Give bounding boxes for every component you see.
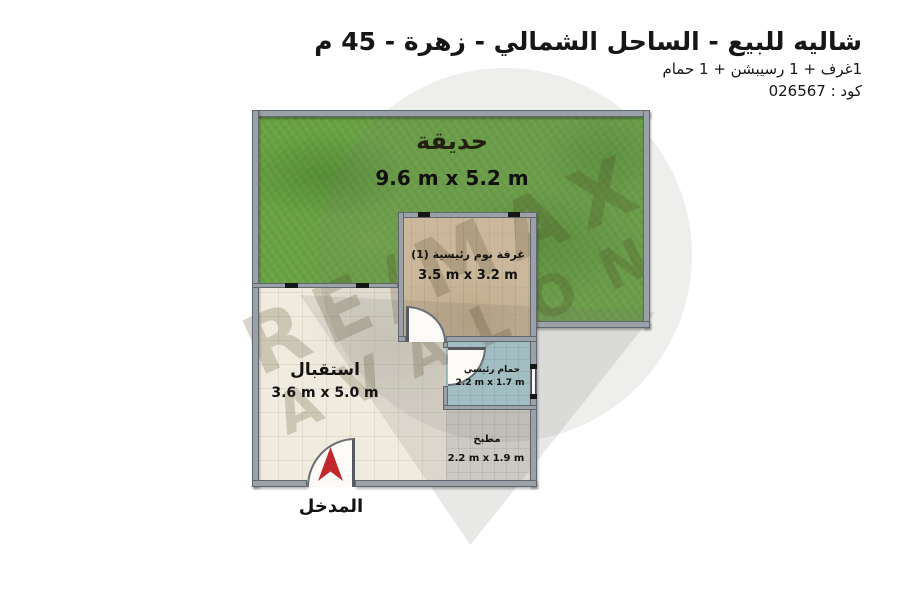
bedroom-dimensions: 3.5 m x 3.2 m [418,268,518,283]
listing-summary: 1غرف + 1 رسيبشن + 1 حمام [662,60,862,78]
wall-bedroom-bottom [446,336,537,342]
wall-bedroom-left [398,212,404,342]
bedroom-label: غرفة نوم رئيسية (1) [411,248,525,261]
listing-title: شاليه للبيع - الساحل الشمالي - زهرة - 45… [314,27,862,56]
kitchen-label: مطبخ [473,434,500,445]
window-bedroom-1 [418,212,430,217]
bathroom-dimensions: 2.2 m x 1.7 m [456,378,525,388]
window-reception-1 [285,283,298,288]
garden-label: حديقة [416,127,488,155]
kitchen-dimensions: 2.2 m x 1.9 m [448,453,525,464]
reception-label: استقبال [290,360,360,380]
listing-code: كود : 026567 [769,82,862,100]
window-bathroom-pane [531,366,536,397]
wall-bathroom-bottom [443,405,537,410]
wall-garden-bottom-right [530,321,650,328]
wall-garden-reception [252,283,398,288]
wall-bedroom-bottom-stub [398,336,406,342]
reception-dimensions: 3.6 m x 5.0 m [271,385,378,401]
wall-outer-top [252,110,650,117]
garden-dimensions: 9.6 m x 5.2 m [375,166,528,190]
window-reception-2 [356,283,369,288]
window-bedroom-2 [508,212,520,217]
entrance-label: المدخل [299,496,363,517]
wall-building-right [530,212,537,487]
wall-bottom-right-segment [355,480,537,487]
window-bathroom-bottom [530,394,537,399]
wall-garden-right [643,110,650,328]
floor-plan-page: شاليه للبيع - الساحل الشمالي - زهرة - 45… [0,0,900,599]
wall-outer-left [252,110,259,487]
window-bathroom-top [530,364,537,369]
wall-bottom-left-segment [252,480,307,487]
bathroom-label: حمام رئيسي [464,365,520,375]
